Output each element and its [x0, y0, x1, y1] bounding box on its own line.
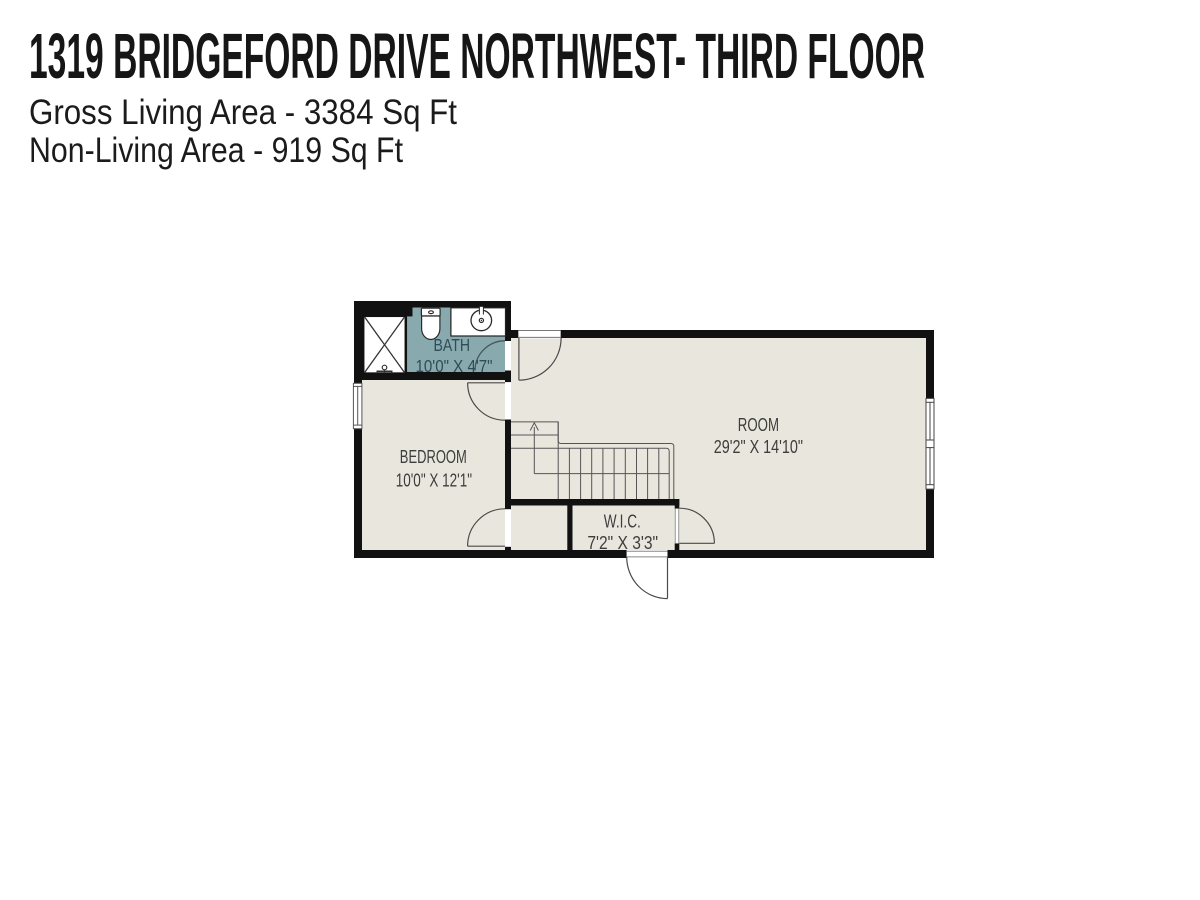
svg-text:10'0" X 12'1": 10'0" X 12'1" — [396, 470, 472, 491]
svg-text:1319 BRIDGEFORD DRIVE NORTHWES: 1319 BRIDGEFORD DRIVE NORTHWEST- THIRD F… — [29, 20, 925, 92]
svg-text:BEDROOM: BEDROOM — [400, 446, 467, 467]
svg-text:Non-Living Area - 919 Sq Ft: Non-Living Area - 919 Sq Ft — [29, 131, 403, 170]
svg-text:7'2" X 3'3": 7'2" X 3'3" — [587, 532, 658, 553]
svg-text:W.I.C.: W.I.C. — [604, 511, 641, 532]
svg-text:29'2" X 14'10": 29'2" X 14'10" — [714, 436, 803, 457]
svg-text:BATH: BATH — [434, 335, 471, 355]
svg-text:Gross Living Area - 3384 Sq Ft: Gross Living Area - 3384 Sq Ft — [29, 93, 457, 132]
svg-text:10'0" X 4'7": 10'0" X 4'7" — [416, 356, 493, 376]
svg-text:ROOM: ROOM — [738, 414, 779, 435]
